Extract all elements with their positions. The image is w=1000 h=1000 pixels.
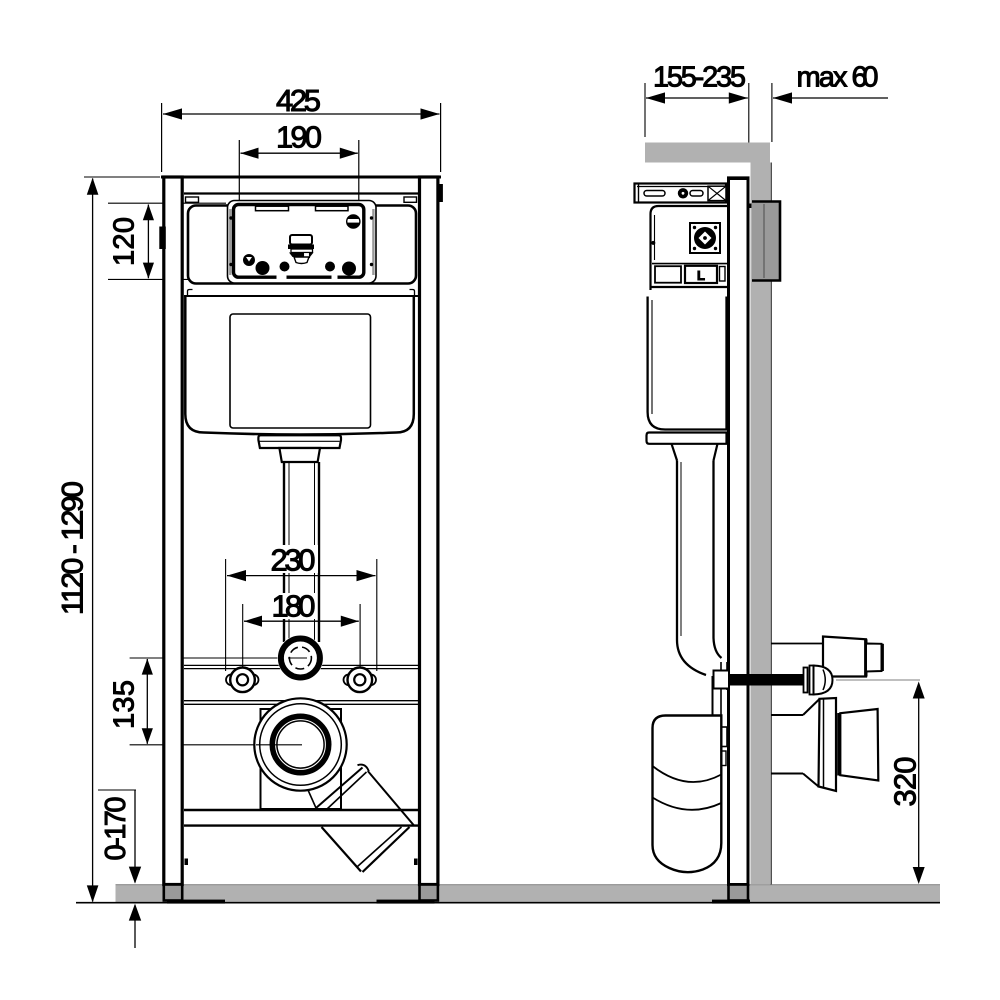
svg-text:155-235: 155-235: [653, 62, 746, 94]
svg-text:0-170: 0-170: [100, 797, 132, 861]
svg-text:190: 190: [276, 120, 322, 155]
svg-text:60: 60: [852, 62, 879, 94]
svg-text:L: L: [697, 268, 705, 283]
svg-text:425: 425: [276, 83, 321, 118]
svg-text:135: 135: [109, 680, 141, 729]
svg-text:max: max: [797, 62, 849, 94]
svg-text:1120 - 1290: 1120 - 1290: [57, 481, 90, 615]
svg-text:320: 320: [888, 757, 923, 807]
svg-text:180: 180: [272, 589, 316, 624]
svg-text:230: 230: [271, 543, 316, 578]
svg-text:120: 120: [109, 217, 141, 266]
